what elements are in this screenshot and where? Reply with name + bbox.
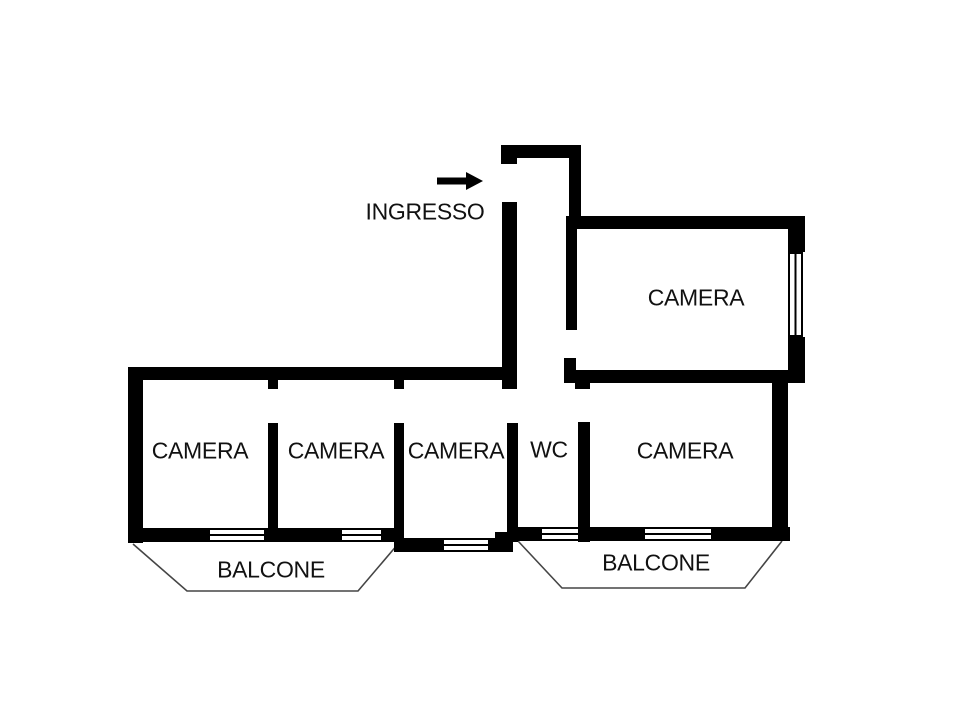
wall-segment — [394, 378, 404, 389]
room-label-balcone-left: BALCONE — [217, 559, 325, 582]
wall-segment — [495, 532, 513, 552]
wall-segment — [713, 527, 790, 541]
wall-segment — [788, 337, 805, 373]
wall-segment — [507, 423, 518, 542]
wall-segment — [501, 145, 517, 164]
wall-segment — [566, 229, 577, 330]
wall-segment — [128, 367, 516, 380]
wall-segment — [383, 528, 400, 542]
wall-segment — [400, 538, 442, 552]
floor-plan-drawing — [0, 0, 960, 720]
wall-segment — [772, 383, 788, 540]
wall-segment — [788, 216, 805, 252]
floor-plan: CAMERA CAMERA CAMERA CAMERA WC CAMERA BA… — [0, 0, 960, 720]
wall-segment — [578, 422, 590, 542]
wall-segment — [588, 527, 643, 541]
wall-segment — [569, 146, 581, 218]
wall-segment — [502, 202, 517, 389]
entrance-arrow-icon — [466, 172, 483, 190]
wall-segment — [575, 381, 590, 389]
wall-segment — [266, 528, 340, 542]
wall-segment — [268, 423, 278, 540]
wall-segment — [566, 216, 805, 229]
room-label-camera-4: CAMERA — [637, 440, 734, 463]
room-label-camera-1: CAMERA — [152, 440, 249, 463]
entrance-label: INGRESSO — [365, 201, 484, 224]
wall-segment — [268, 378, 278, 389]
room-label-camera-top-right: CAMERA — [648, 287, 745, 310]
wall-segment — [566, 370, 805, 383]
room-label-camera-3: CAMERA — [408, 440, 505, 463]
room-label-camera-2: CAMERA — [288, 440, 385, 463]
wall-segment — [128, 528, 208, 542]
wall-segment — [128, 367, 143, 543]
room-label-wc: WC — [530, 439, 568, 462]
room-label-balcone-right: BALCONE — [602, 552, 710, 575]
wall-segment — [513, 527, 540, 541]
